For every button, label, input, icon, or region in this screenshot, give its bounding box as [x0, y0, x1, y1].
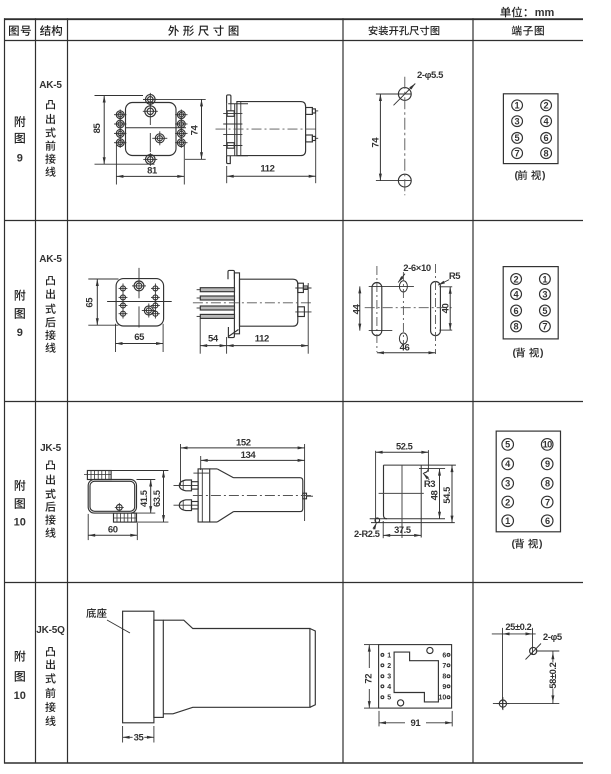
svg-text:8: 8	[442, 674, 446, 681]
svg-text:5: 5	[515, 133, 520, 143]
svg-text:6: 6	[514, 306, 519, 316]
svg-text:72: 72	[364, 674, 375, 684]
svg-text:81: 81	[147, 166, 158, 177]
svg-text:6: 6	[544, 133, 549, 143]
svg-text:2: 2	[387, 663, 391, 670]
svg-text:58±0.2: 58±0.2	[548, 662, 558, 688]
svg-text:10: 10	[14, 690, 26, 702]
svg-text:91: 91	[411, 718, 422, 729]
svg-text:7: 7	[442, 663, 446, 670]
svg-text:85: 85	[92, 123, 103, 134]
svg-text:52.5: 52.5	[396, 442, 413, 452]
svg-text:7: 7	[545, 497, 550, 507]
svg-text:3: 3	[505, 479, 510, 489]
svg-text:AK-5: AK-5	[39, 254, 62, 265]
svg-text:6: 6	[442, 652, 446, 659]
svg-text:7: 7	[515, 149, 520, 159]
svg-text:3: 3	[387, 674, 391, 681]
svg-text:54.5: 54.5	[442, 487, 452, 504]
svg-text:40: 40	[440, 304, 451, 314]
svg-text:46: 46	[400, 342, 410, 353]
svg-text:5: 5	[542, 306, 547, 316]
svg-text:AK-5: AK-5	[39, 80, 62, 91]
svg-text:3: 3	[515, 117, 520, 127]
svg-text:2-R2.5: 2-R2.5	[354, 529, 380, 539]
svg-text:7: 7	[542, 322, 547, 332]
svg-text:37.5: 37.5	[394, 525, 411, 535]
svg-text:10: 10	[14, 517, 26, 529]
svg-text:4: 4	[505, 459, 511, 469]
svg-text:): )	[540, 347, 543, 359]
svg-text:mm: mm	[535, 7, 555, 19]
svg-text:2-φ5.5: 2-φ5.5	[417, 70, 444, 81]
svg-text:9: 9	[17, 327, 23, 339]
svg-text:2-φ5: 2-φ5	[543, 632, 563, 643]
svg-text:2: 2	[505, 497, 510, 507]
svg-text:63.5: 63.5	[152, 490, 162, 507]
svg-text:1: 1	[387, 652, 391, 659]
svg-text:60: 60	[108, 525, 118, 536]
svg-text:5: 5	[387, 695, 391, 702]
svg-text:1: 1	[505, 516, 510, 526]
svg-text:1: 1	[515, 101, 520, 111]
svg-text:4: 4	[544, 117, 550, 127]
svg-text:8: 8	[544, 149, 549, 159]
svg-text:6: 6	[545, 516, 550, 526]
svg-text:8: 8	[545, 479, 550, 489]
svg-text:2: 2	[514, 274, 519, 284]
svg-text:2: 2	[544, 101, 549, 111]
svg-text:9: 9	[17, 153, 23, 165]
svg-text:10: 10	[439, 695, 447, 702]
svg-text:9: 9	[442, 684, 446, 691]
svg-text:3: 3	[542, 289, 547, 299]
svg-text:8: 8	[514, 322, 519, 332]
svg-text:R3: R3	[424, 479, 435, 490]
svg-text:112: 112	[255, 334, 269, 345]
svg-text:134: 134	[241, 450, 257, 461]
svg-text:65: 65	[84, 297, 95, 308]
svg-text:): )	[542, 170, 545, 182]
svg-text:152: 152	[236, 437, 251, 448]
svg-text:25±0.2: 25±0.2	[505, 622, 531, 632]
svg-text:JK-5: JK-5	[40, 443, 62, 454]
svg-text:2-6×10: 2-6×10	[403, 263, 431, 274]
svg-text:54: 54	[208, 334, 219, 345]
svg-text:48: 48	[429, 491, 440, 501]
svg-text:4: 4	[387, 684, 391, 691]
svg-text:44: 44	[351, 304, 362, 315]
svg-text:1: 1	[542, 274, 547, 284]
svg-text:65: 65	[134, 332, 145, 343]
svg-text:74: 74	[190, 125, 201, 136]
svg-text:JK-5Q: JK-5Q	[36, 625, 65, 636]
svg-text:10: 10	[543, 440, 553, 450]
svg-text:74: 74	[370, 137, 381, 148]
svg-text:): )	[539, 538, 542, 550]
svg-text:9: 9	[545, 459, 550, 469]
svg-text:112: 112	[260, 164, 274, 175]
svg-text:41.5: 41.5	[139, 490, 149, 507]
svg-text:5: 5	[505, 440, 510, 450]
svg-text:35: 35	[134, 732, 145, 743]
svg-text:4: 4	[514, 289, 520, 299]
svg-text:R5: R5	[449, 271, 461, 282]
